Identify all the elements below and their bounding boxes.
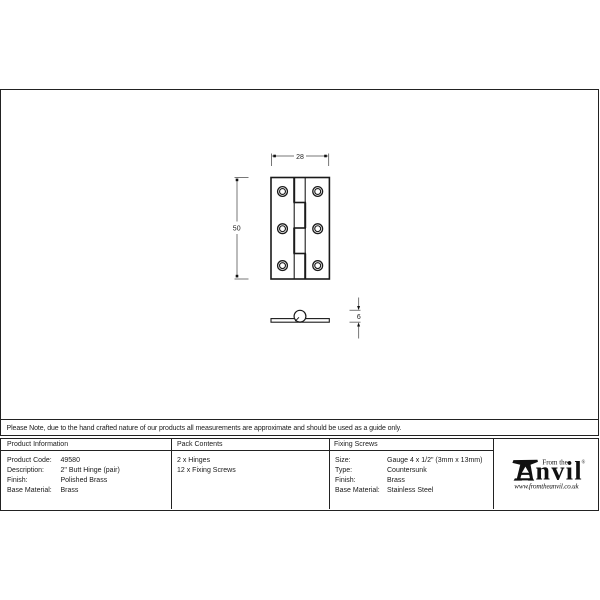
svg-text:6: 6 (357, 314, 361, 321)
svg-text:50: 50 (233, 226, 241, 233)
svg-text:www.fromtheanvil.co.uk: www.fromtheanvil.co.uk (514, 482, 579, 490)
svg-text:®: ® (582, 460, 586, 466)
svg-text:28: 28 (296, 154, 304, 161)
svg-text:nvil: nvil (536, 457, 584, 486)
